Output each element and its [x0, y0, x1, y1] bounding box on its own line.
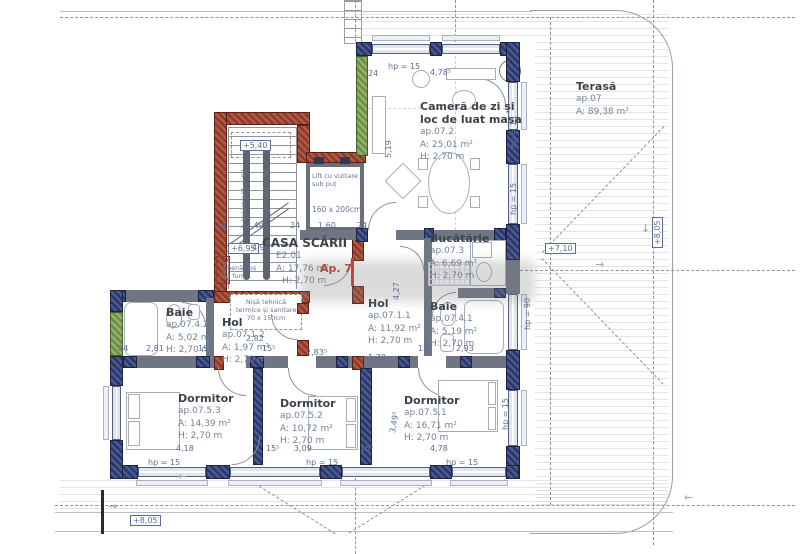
niche-label-line2: termice și sanitare — [236, 306, 296, 314]
level-label-roof-right: +8,05 — [652, 217, 663, 248]
room-id: ap.07.1.1 — [368, 310, 421, 323]
dimension-label: 24 — [368, 69, 378, 78]
dimension-label: 5,19 — [384, 140, 393, 158]
pillow — [346, 398, 356, 422]
slope-arrow: → — [595, 258, 604, 271]
dimension-label: 4,18 — [176, 444, 194, 453]
dimension-label: 3,49⁵ — [388, 411, 401, 433]
chimney-label-line1: Ghenă coș — [222, 264, 256, 272]
axis-line-bottom — [55, 505, 795, 506]
dimension-label: hp = 15 — [446, 458, 478, 467]
wall-segment-red — [297, 303, 309, 314]
window-sill — [136, 480, 208, 486]
dimension-label: hp = 90 — [523, 298, 532, 330]
wall-pier — [206, 465, 230, 479]
dimension-label: 2,82 — [246, 334, 264, 343]
room-name: Dormitor — [178, 392, 234, 405]
plant — [412, 70, 430, 88]
wall-pier — [430, 465, 452, 479]
window — [112, 386, 121, 440]
dimension-label: 15⁵ — [418, 344, 431, 353]
window-sill — [228, 480, 322, 486]
wall-pier — [506, 224, 520, 260]
room-area: A: 25,01 m² — [420, 139, 522, 152]
dimension-label: 1,60 — [318, 221, 336, 230]
pillow — [128, 421, 140, 446]
room-id: ap.07.3 — [430, 245, 490, 258]
dimension-label: 2,93 — [456, 344, 474, 353]
dimension-label: hp = 15 — [148, 458, 180, 467]
room-id: ap.07 — [576, 93, 629, 106]
wall-segment — [446, 356, 506, 368]
dimension-label: 3,09 — [294, 444, 312, 453]
window-sill — [340, 480, 432, 486]
window — [452, 467, 506, 477]
wall-pier — [336, 356, 348, 368]
edge-mark — [101, 490, 104, 534]
dimension-label: hp = 15 — [306, 458, 338, 467]
slope-arrow: ↓ — [641, 222, 650, 235]
room-label-terrace: Terasă ap.07 A: 89,38 m² — [576, 80, 629, 118]
room-area: A: 14,39 m² — [178, 418, 234, 431]
room-label-bath-right: Baie ap.07.4.1 A: 5,19 m² H: 2,70 m — [430, 300, 477, 351]
dimension-label: 1,70 — [368, 353, 386, 362]
dimension-label: hp = 15 — [501, 398, 510, 430]
room-name: loc de luat masa — [420, 113, 522, 126]
room-height: H: 2,70 m — [178, 430, 234, 443]
window — [442, 44, 500, 54]
chair — [418, 196, 428, 208]
room-area: A: 10,72 m² — [280, 423, 336, 436]
watermark — [300, 260, 535, 302]
wall-pier — [320, 465, 342, 479]
slope-arrow: ← — [178, 470, 187, 483]
dimension-label: 24 — [118, 344, 128, 353]
rug — [385, 163, 422, 200]
terrace-edge-top — [60, 11, 532, 12]
room-id: ap.07.4.1 — [430, 313, 477, 326]
slope-arrow: ← — [684, 491, 693, 504]
room-height: H: 2,70 m — [368, 335, 421, 348]
window-sill — [450, 480, 508, 486]
axis-line-v3 — [550, 17, 551, 505]
window — [138, 467, 206, 477]
dimension-label: 15⁵ — [198, 344, 211, 353]
wall-pier — [110, 440, 123, 479]
room-area: A: 11,92 m² — [368, 323, 421, 336]
chimney-label: Ghenă coș de fum — [222, 264, 256, 280]
room-label-hall-main: Hol ap.07.1.1 A: 11,92 m² H: 2,70 m — [368, 297, 421, 348]
room-id: ap.07.5.3 — [178, 405, 234, 418]
room-name: Cameră de zi și — [420, 100, 522, 113]
dimension-label: 2,81 — [146, 344, 164, 353]
balustrade-label: h balustradă = 90 — [240, 169, 248, 228]
axis-line-mid-right — [520, 270, 795, 271]
dimension-label: hp = 15 — [509, 116, 518, 148]
room-id: ap.07.5.1 — [404, 407, 460, 420]
dimension-label: 24 — [357, 221, 367, 230]
window — [230, 467, 320, 477]
level-label-terrace: +7,10 — [545, 243, 576, 254]
wall-pier — [398, 356, 410, 368]
wall-pier — [506, 465, 519, 479]
level-label-stair: +5,40 — [240, 140, 271, 151]
lift-label-line2: sub puț — [312, 180, 358, 188]
pillow — [346, 424, 356, 448]
dimension-label: 15⁵ — [262, 344, 275, 353]
room-label-bedroom-right: Dormitor ap.07.5.1 A: 16,71 m² H: 2,70 m — [404, 394, 460, 445]
room-id: ap.07.4.2 — [166, 319, 213, 332]
floor-plan: h balustradă = 90 h balustradă = 90 +5,4… — [0, 0, 800, 554]
wall-pier — [110, 356, 123, 386]
lift-label: Lift cu vizitare sub puț — [312, 172, 358, 188]
wall-pier — [356, 228, 368, 242]
window-sill — [372, 35, 430, 41]
room-label-living: Cameră de zi și loc de luat masa ap.07.2… — [420, 100, 522, 164]
dimension-label: 24 — [290, 221, 300, 230]
dimension-label: 15⁵ — [266, 444, 279, 453]
pillow — [488, 382, 496, 405]
room-name: Dormitor — [404, 394, 460, 407]
pillow — [488, 407, 496, 430]
terrace-edge-bottom-1 — [55, 512, 673, 513]
door-arc-hall-small — [271, 314, 297, 340]
room-area: A: 16,71 m² — [404, 420, 460, 433]
slope-arrow: → — [108, 500, 117, 513]
dimension-label: 4,78 — [430, 444, 448, 453]
door-arc-bedroom-mid — [288, 368, 316, 396]
level-label-roof-bottom: +8,05 — [130, 515, 161, 526]
lift-label-line1: Lift cu vizitare — [312, 172, 358, 180]
room-label-bedroom-left: Dormitor ap.07.5.3 A: 14,39 m² H: 2,70 m — [178, 392, 234, 443]
lift-guide — [314, 157, 324, 164]
dimension-label: 24 — [216, 221, 226, 230]
window — [508, 294, 518, 350]
window-sill — [521, 82, 527, 130]
lift-size-label: 160 x 200cm — [312, 205, 361, 214]
room-name: Hol — [222, 316, 269, 329]
door-arc-living — [368, 202, 396, 230]
window-sill — [103, 386, 109, 440]
exterior-ladder — [344, 0, 362, 44]
room-id: ap.07.2 — [420, 126, 522, 139]
room-name: Dormitor — [280, 397, 336, 410]
axis-line-v5 — [355, 478, 356, 554]
wall-pier — [460, 356, 472, 368]
wall-pier — [110, 290, 123, 312]
balustrade-label: h balustradă = 90 — [262, 169, 270, 228]
room-height: H: 2,70 m — [420, 151, 522, 164]
pillow — [128, 394, 140, 419]
axis-line-top — [60, 17, 795, 18]
chimney-label-line2: de fum — [222, 272, 256, 280]
chair — [470, 196, 480, 208]
wall-pier — [506, 42, 520, 82]
axis-line-v4 — [653, 0, 654, 545]
room-name: Baie — [166, 306, 213, 319]
dimension-label: 15⁵ — [360, 444, 373, 453]
dimension-label: 4,96 — [252, 243, 270, 252]
terrace-edge-bottom-2 — [55, 531, 673, 532]
wall-pier — [506, 350, 520, 390]
wall-pier — [356, 42, 372, 56]
room-area: A: 5,02 m² — [166, 332, 213, 345]
window-sill — [442, 35, 500, 41]
window — [342, 467, 430, 477]
wall-masonry — [356, 56, 368, 156]
dimension-label: 4,27 — [392, 282, 401, 300]
dimension-label: hp = 15 — [388, 62, 420, 71]
sideboard — [446, 68, 496, 80]
window-sill — [521, 390, 527, 446]
room-height: H: 2,70 m — [222, 354, 269, 367]
room-name: Terasă — [576, 80, 629, 93]
room-area: A: 5,19 m² — [430, 326, 477, 339]
room-name: CASA SCĂRII — [262, 237, 347, 250]
stair-core-wall-top — [214, 112, 310, 125]
niche-label-line1: Nișă tehnică — [236, 298, 296, 306]
dimension-label: hp = 15 — [509, 183, 518, 215]
room-height: H: 2,70 m — [404, 432, 460, 445]
window-sill — [521, 164, 527, 224]
window — [372, 44, 430, 54]
room-id: ap.07.5.2 — [280, 410, 336, 423]
wall-pier — [430, 42, 442, 56]
room-name: Bucătărie — [430, 232, 490, 245]
dimension-label: 4,78⁵ — [430, 68, 451, 77]
lift-guide — [340, 157, 350, 164]
wall-pier — [196, 356, 210, 368]
room-label-bedroom-mid: Dormitor ap.07.5.2 A: 10,72 m² H: 2,70 m — [280, 397, 336, 448]
dimension-label: 2,49 — [246, 221, 264, 230]
dimension-label: 2,83⁵ — [306, 348, 327, 357]
room-area: A: 89,38 m² — [576, 106, 629, 119]
wall-pier — [123, 356, 137, 368]
